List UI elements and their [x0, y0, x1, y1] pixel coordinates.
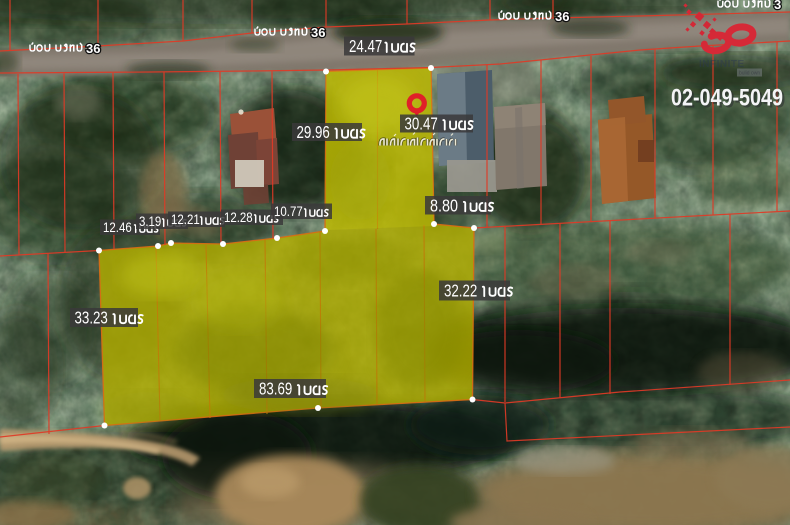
svg-text:32.22: 32.22 — [444, 282, 477, 301]
svg-text:02-049-5049: 02-049-5049 — [671, 85, 783, 112]
svg-text:30.47: 30.47 — [404, 115, 437, 134]
svg-text:83.69: 83.69 — [259, 380, 292, 399]
svg-text:12.21: 12.21 — [171, 212, 200, 227]
svg-text:12.28: 12.28 — [224, 210, 253, 225]
svg-text:29.96: 29.96 — [297, 123, 330, 142]
svg-text:INFINITE: INFINITE — [699, 59, 745, 70]
svg-text:3.19: 3.19 — [139, 214, 161, 229]
svg-text:3: 3 — [774, 0, 781, 12]
svg-text:8.80: 8.80 — [430, 196, 458, 216]
svg-text:36: 36 — [86, 41, 100, 56]
svg-text:12.46: 12.46 — [103, 220, 132, 235]
svg-text:24.47: 24.47 — [349, 37, 382, 56]
svg-text:36: 36 — [311, 25, 325, 40]
svg-text:10.77: 10.77 — [274, 204, 303, 219]
svg-text:33.23: 33.23 — [75, 309, 108, 328]
svg-text:36: 36 — [555, 9, 569, 24]
svg-text:bulid own: bulid own — [739, 71, 760, 77]
